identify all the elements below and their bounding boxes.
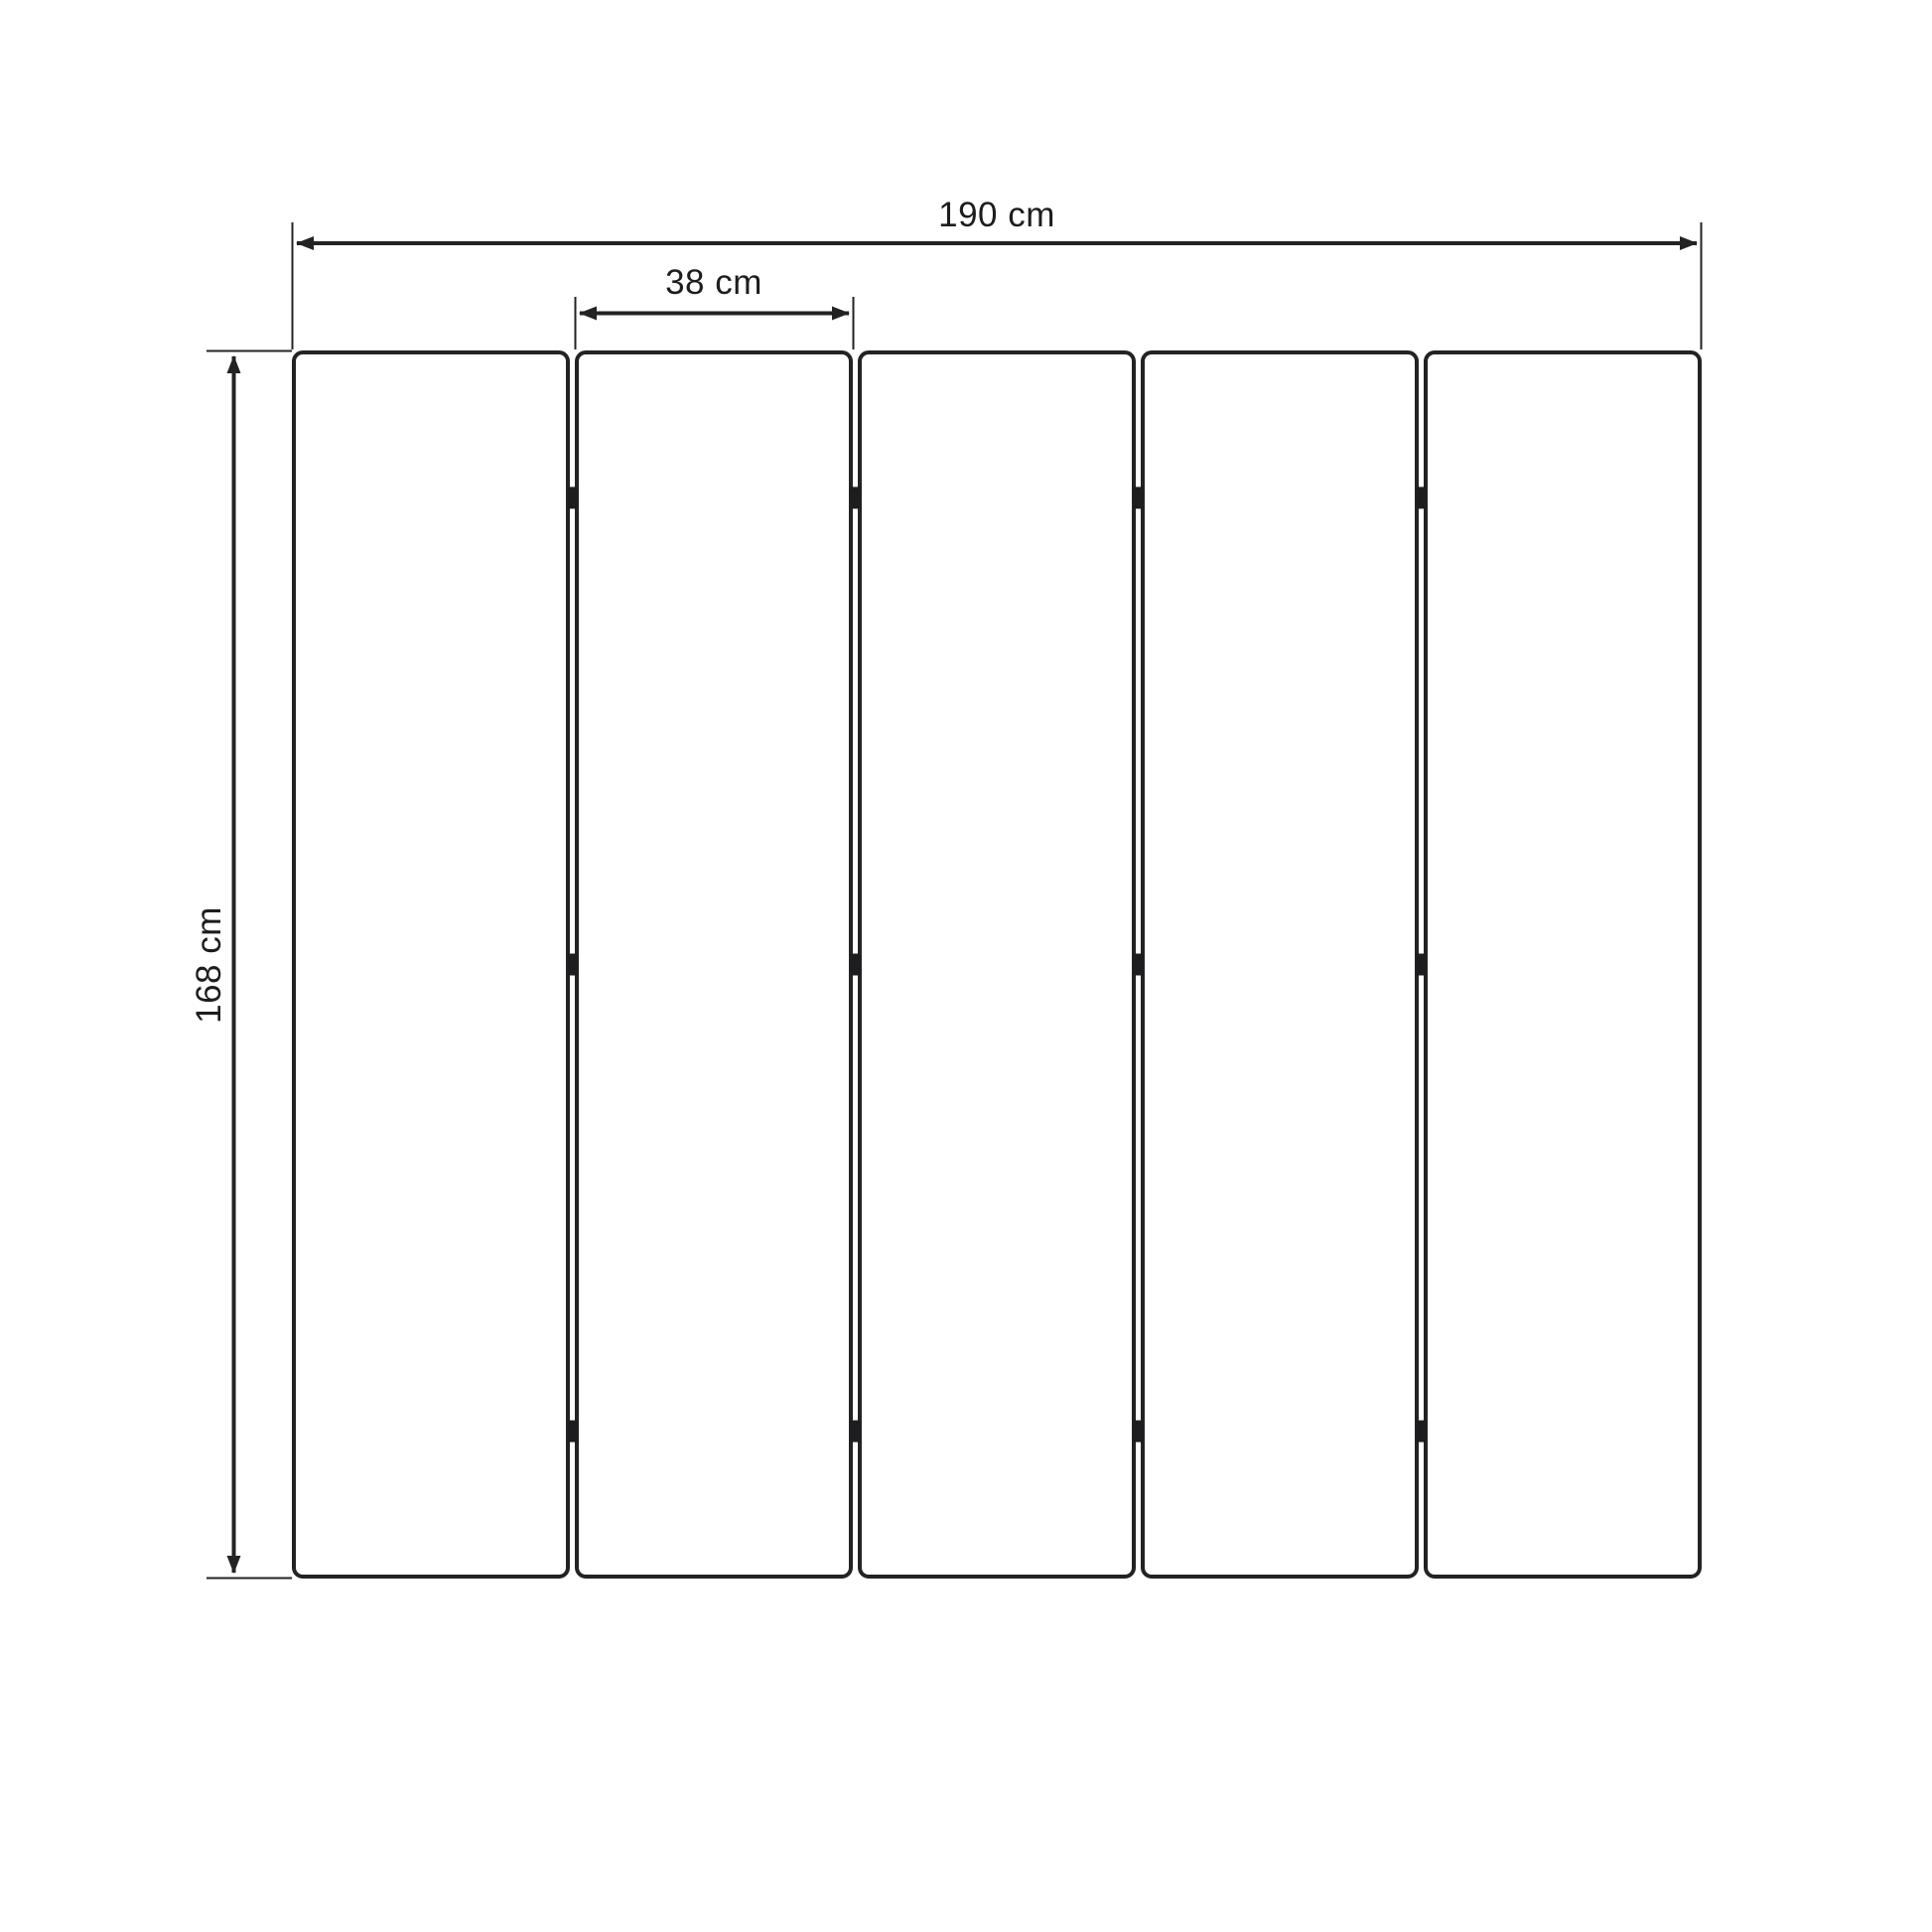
hinge-gap1-row2 xyxy=(568,954,578,976)
panel-2 xyxy=(577,352,851,1577)
hinge-gap3-row1 xyxy=(1134,486,1144,508)
hinge-gap4-row2 xyxy=(1417,954,1427,976)
dimension-label-total-height: 168 cm xyxy=(190,906,228,1024)
hinge-gap2-row2 xyxy=(851,954,861,976)
hinge-gap3-row3 xyxy=(1134,1421,1144,1443)
drawing-canvas: 190 cm 38 cm 168 cm xyxy=(0,0,1932,1932)
panels-group xyxy=(294,352,1700,1577)
dimension-label-total-width: 190 cm xyxy=(938,196,1055,234)
panel-4 xyxy=(1143,352,1417,1577)
hinge-gap4-row3 xyxy=(1417,1421,1427,1443)
technical-drawing: 190 cm 38 cm 168 cm xyxy=(0,0,1932,1932)
hinge-gap3-row2 xyxy=(1134,954,1144,976)
panel-5 xyxy=(1426,352,1700,1577)
dimension-panel-width: 38 cm xyxy=(576,263,854,349)
hinge-gap2-row3 xyxy=(851,1421,861,1443)
panel-1 xyxy=(294,352,568,1577)
hinge-gap1-row3 xyxy=(568,1421,578,1443)
dimension-total-height: 168 cm xyxy=(190,351,292,1579)
hinge-gap1-row1 xyxy=(568,486,578,508)
dimension-label-panel-width: 38 cm xyxy=(665,263,762,302)
hinge-gap2-row1 xyxy=(851,486,861,508)
dimension-total-width: 190 cm xyxy=(293,196,1702,349)
hinge-gap4-row1 xyxy=(1417,486,1427,508)
panel-3 xyxy=(860,352,1134,1577)
